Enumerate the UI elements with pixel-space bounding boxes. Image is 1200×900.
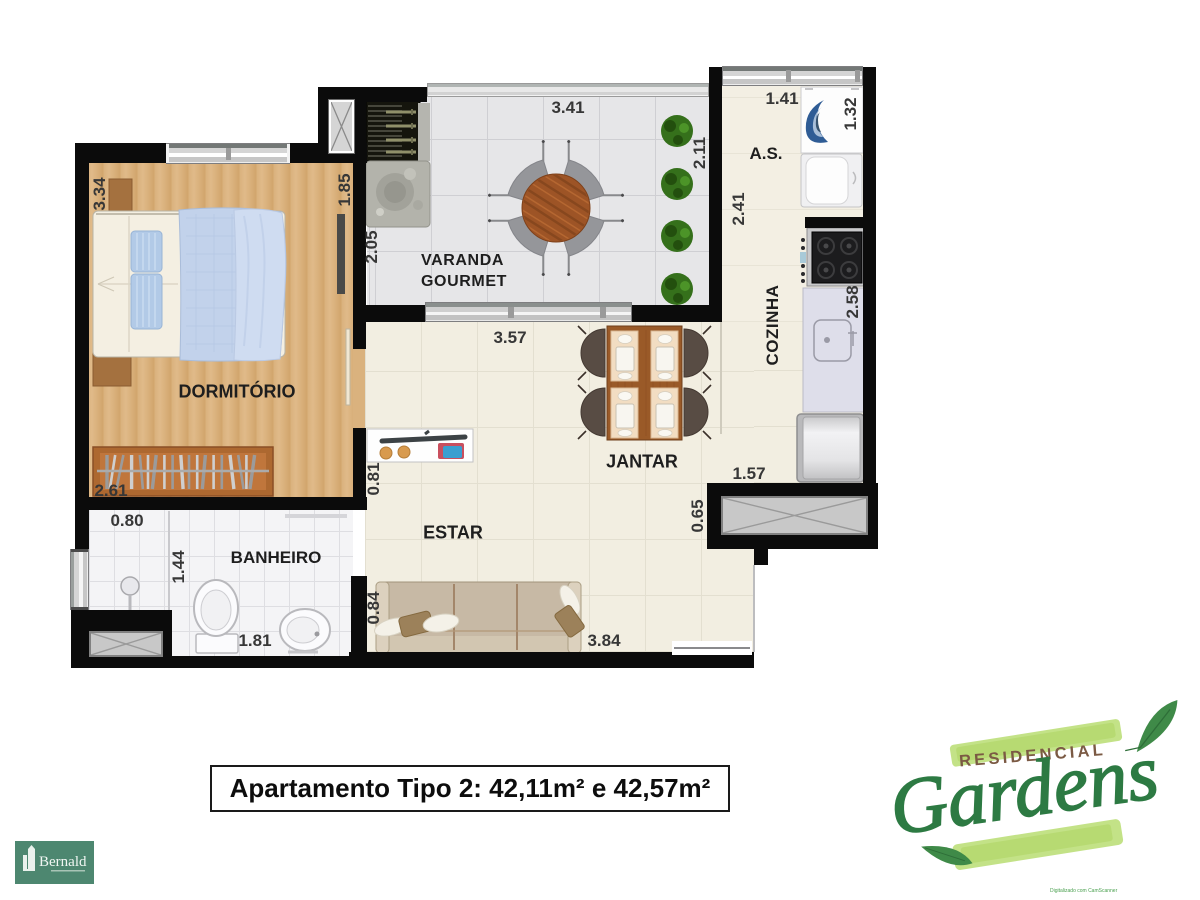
svg-text:Bernald: Bernald <box>39 854 87 870</box>
svg-text:Digitalizado com CamScanner: Digitalizado com CamScanner <box>1050 888 1118 894</box>
